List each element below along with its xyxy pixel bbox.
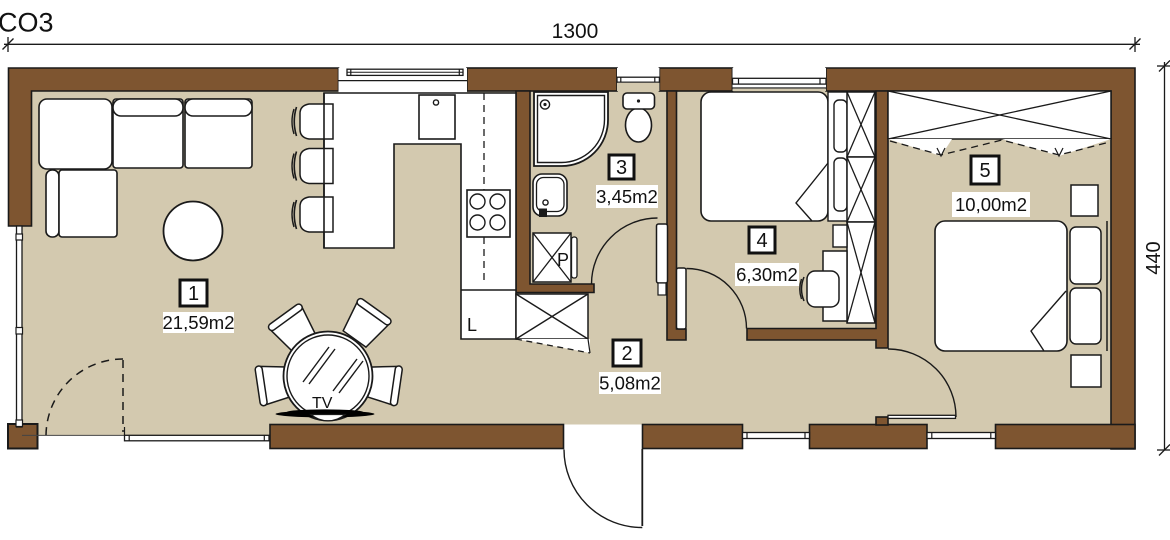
svg-text:6,30m2: 6,30m2 — [736, 264, 798, 285]
svg-text:1300: 1300 — [552, 20, 599, 43]
svg-text:440: 440 — [1143, 241, 1165, 274]
svg-text:4: 4 — [756, 230, 767, 252]
svg-text:3,45m2: 3,45m2 — [596, 186, 658, 207]
svg-text:2: 2 — [621, 343, 632, 365]
svg-text:5,08m2: 5,08m2 — [599, 373, 661, 394]
svg-text:1: 1 — [188, 283, 199, 305]
svg-text:10,00m2: 10,00m2 — [955, 194, 1027, 215]
svg-text:TV: TV — [312, 395, 333, 412]
svg-text:5: 5 — [979, 160, 990, 182]
svg-text:3: 3 — [616, 157, 627, 179]
svg-text:P: P — [557, 250, 569, 270]
svg-text:21,59m2: 21,59m2 — [163, 312, 235, 333]
svg-text:CO3: CO3 — [0, 8, 54, 38]
svg-text:L: L — [467, 315, 477, 335]
